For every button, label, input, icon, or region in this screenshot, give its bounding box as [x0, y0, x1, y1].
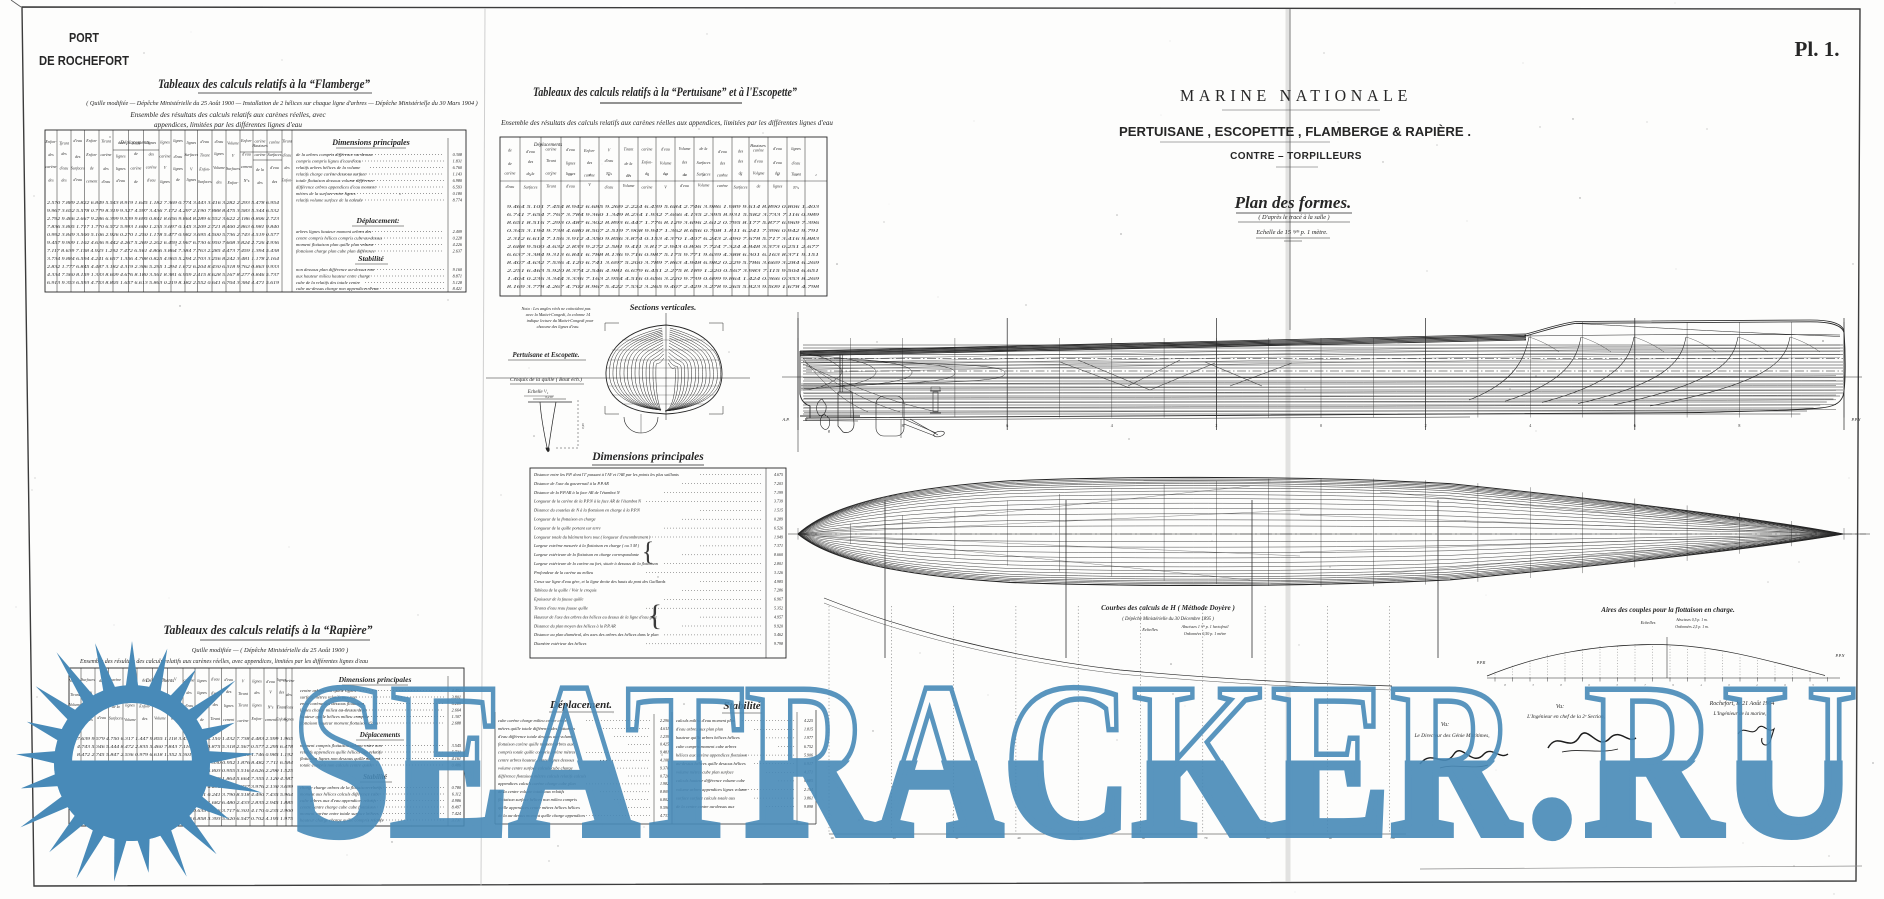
- svg-text:d'eau: d'eau: [242, 152, 251, 157]
- svg-text:3.734 9.884 6.594 4.241 6.: 3.734 9.884 6.594 4.241 6.657 1.356 4.70…: [47, 256, 280, 261]
- svg-text:3.126: 3.126: [774, 570, 783, 575]
- svg-text:6.526: 6.526: [774, 525, 783, 530]
- svg-text:2.688 9.500 4.632 2.833 9.: 2.688 9.500 4.632 2.833 9.272 2.581 9.41…: [507, 244, 820, 249]
- svg-text:0.308: 0.308: [453, 152, 463, 157]
- svg-text:d'eau: d'eau: [60, 165, 69, 170]
- svg-text:des: des: [254, 690, 260, 695]
- svg-text:Surfaces: Surfaces: [226, 166, 240, 171]
- svg-text:Echelles: Echelles: [1141, 627, 1158, 632]
- svg-text:d'eau: d'eau: [566, 147, 575, 152]
- svg-text:de: de: [200, 717, 204, 722]
- svg-text:lignes: lignes: [160, 139, 170, 144]
- svg-text:Tirant: Tirant: [546, 184, 557, 189]
- svg-text:carène: carène: [131, 166, 142, 171]
- svg-text:Longueur de la carène de la P.: Longueur de la carène de la P.P.N à la f…: [533, 499, 642, 504]
- svg-text:cube de la relatifs des totale: cube de la relatifs des totale centre: [296, 280, 360, 285]
- svg-text:7.117 8.639 7.158 4.923 1.: 7.117 8.639 7.158 4.923 1.292 7.472 6.56…: [47, 248, 280, 253]
- svg-text:{: {: [648, 599, 662, 632]
- svg-text:Distance de l'axe du gouvernai: Distance de l'axe du gouvernail à la P.P…: [533, 481, 609, 486]
- svg-text:de: de: [134, 151, 138, 156]
- svg-text:de: de: [508, 161, 512, 166]
- svg-text:1.143: 1.143: [453, 172, 462, 177]
- svg-text:lignes: lignes: [252, 703, 262, 708]
- svg-text:Aires des couples pour la flot: Aires des couples pour la flottaison en …: [1600, 606, 1735, 614]
- svg-text:carène: carène: [255, 152, 266, 157]
- svg-text:d'eau: d'eau: [661, 147, 670, 152]
- svg-text:lignes: lignes: [197, 678, 207, 683]
- svg-text:7.199: 7.199: [774, 490, 783, 495]
- svg-text:6.593: 6.593: [453, 185, 462, 190]
- svg-text:Echelle de 15 ᵐ⁄ᵐ p. 1 mètre.: Echelle de 15 ᵐ⁄ᵐ p. 1 mètre.: [1255, 229, 1328, 236]
- svg-text:g: g: [828, 428, 830, 433]
- svg-text:d'eau: d'eau: [283, 152, 292, 157]
- svg-text:de la: de la: [625, 161, 633, 166]
- svg-text:14: 14: [683, 173, 687, 177]
- svg-text:relatifs arbres hélices de la: relatifs arbres hélices de la volume: [296, 165, 360, 170]
- svg-text:1: 1: [722, 173, 724, 177]
- svg-text:3.739: 3.739: [774, 499, 783, 504]
- svg-text:aux hauteur milieu hauteur ent: aux hauteur milieu hauteur entre charge: [296, 274, 370, 279]
- svg-text:Volume: Volume: [623, 183, 635, 188]
- svg-text:8: 8: [902, 423, 904, 428]
- svg-text:de: de: [508, 148, 512, 153]
- svg-text:carène: carène: [238, 718, 249, 723]
- svg-text:Tableaux des calculs relatifs: Tableaux des calculs relatifs à la “Rapi…: [164, 622, 373, 637]
- svg-text:Déplacements: Déplacements: [533, 143, 562, 148]
- svg-text:Enfon-: Enfon-: [240, 138, 253, 143]
- svg-text:Distance de la P.P.AR à la fac: Distance de la P.P.AR à la face AR de l'…: [533, 490, 621, 495]
- svg-text:8: 8: [777, 173, 779, 177]
- svg-text:Hauteurs: Hauteurs: [749, 143, 766, 148]
- svg-text:carène: carène: [717, 183, 728, 188]
- svg-text:9.920: 9.920: [774, 623, 783, 628]
- svg-text:des: des: [528, 159, 534, 164]
- svg-text:Enfon-: Enfon-: [641, 160, 654, 165]
- svg-text:des: des: [213, 702, 219, 707]
- svg-text:Surfaces: Surfaces: [184, 152, 198, 157]
- svg-text:non dessous plan différence au: non dessous plan différence au-dessus no…: [296, 267, 375, 272]
- svg-text:2.312 6.614 7.156 3.912 4.: 2.312 6.614 7.156 3.912 4.350 9.856 3.87…: [507, 236, 820, 241]
- svg-text:Tirant: Tirant: [200, 152, 211, 157]
- svg-text:lignes: lignes: [566, 161, 576, 166]
- svg-text:lignes: lignes: [214, 151, 224, 156]
- svg-text:4.675: 4.675: [774, 472, 783, 477]
- svg-text:Volume: Volume: [698, 183, 710, 188]
- svg-text:Surfaces: Surfaces: [524, 184, 538, 189]
- svg-text:6.760: 6.760: [453, 165, 463, 170]
- svg-text:Enfon-: Enfon-: [198, 166, 211, 171]
- svg-text:d'eau: d'eau: [102, 179, 111, 184]
- svg-text:8.407 4.632 7.536 4.120 6.: 8.407 4.632 7.536 4.120 6.741 3.697 5.20…: [507, 260, 820, 265]
- svg-text:des: des: [738, 158, 744, 163]
- svg-text:8.472 2.745 5.847 2.536 0.: 8.472 2.745 5.847 2.536 0.979 6.618 1.35…: [77, 752, 294, 757]
- svg-text:d'eau: d'eau: [224, 677, 233, 682]
- svg-text:CONTRE – TORPILLEURS: CONTRE – TORPILLEURS: [1230, 151, 1362, 162]
- svg-text:5: 5: [628, 173, 630, 177]
- svg-text:Enfon-: Enfon-: [583, 148, 596, 153]
- svg-text:Dimensions principales: Dimensions principales: [331, 138, 410, 147]
- svg-text:des: des: [142, 716, 148, 721]
- svg-text:N°s: N°s: [267, 705, 274, 710]
- svg-text:Tableaux des calculs relatifs: Tableaux des calculs relatifs à la “Pert…: [533, 85, 798, 99]
- svg-text:6.980: 6.980: [453, 178, 463, 183]
- svg-text:d'eau: d'eau: [211, 677, 220, 682]
- svg-text:N°s: N°s: [243, 178, 250, 183]
- svg-text:Epaisseur de la fausse quille: Epaisseur de la fausse quille: [533, 597, 584, 602]
- svg-text:2.409: 2.409: [453, 229, 463, 234]
- svg-text:3: 3: [665, 173, 667, 177]
- svg-text:7.639 9.579 4.750 6.317 1.: 7.639 9.579 4.750 6.317 1.447 9.855 1.11…: [77, 736, 294, 741]
- svg-text:carène: carène: [269, 139, 280, 144]
- svg-text:Tirant: Tirant: [624, 146, 635, 151]
- svg-text:indique lecture du Mattei-Cong: indique lecture du Mattei-Congedi pour: [527, 318, 594, 323]
- svg-text:des: des: [257, 180, 263, 185]
- svg-text:8.774: 8.774: [453, 198, 462, 203]
- svg-text:2.637: 2.637: [453, 249, 463, 254]
- svg-text:lignes: lignes: [160, 179, 170, 184]
- svg-text:Volume: Volume: [124, 717, 136, 722]
- svg-text:d'eau: d'eau: [116, 178, 125, 183]
- svg-text:carène: carène: [753, 147, 764, 152]
- svg-text:P.P.N: P.P.N: [1851, 417, 1861, 422]
- svg-text:2.801: 2.801: [774, 561, 783, 566]
- svg-text:8.651 8.516 7.293 0.487 6.: 8.651 8.516 7.293 0.487 6.302 8.893 6.44…: [507, 220, 820, 225]
- svg-text:17: 17: [794, 173, 798, 177]
- svg-text:1.949: 1.949: [774, 534, 783, 539]
- svg-text:carène: carène: [160, 153, 171, 158]
- svg-text:4.226: 4.226: [453, 242, 463, 247]
- svg-text:9.464 5.101 7.454 8.942 6.: 9.464 5.101 7.454 8.942 6.685 9.269 2.22…: [507, 204, 820, 209]
- svg-text:Abscisses 1 ᵖ/ᵐ p. 1 hectofe: Abscisses 1 ᵖ/ᵐ p. 1 hectofeuil: [1180, 624, 1229, 629]
- svg-text:lignes: lignes: [773, 184, 783, 189]
- svg-text:de: de: [90, 166, 94, 171]
- svg-text:7.203: 7.203: [774, 481, 783, 486]
- svg-text:Enfon-: Enfon-: [251, 716, 264, 721]
- svg-text:compris compris lignes d'eau d: compris compris lignes d'eau d'eau: [296, 159, 362, 164]
- svg-text:d'eau: d'eau: [526, 149, 535, 154]
- svg-text:R: R: [804, 417, 808, 422]
- svg-text:Hauteur de l'axe des arbres de: Hauteur de l'axe des arbres des hélices …: [533, 614, 657, 619]
- svg-text:Surfaces: Surfaces: [734, 185, 748, 190]
- svg-text:( D'après le tracé à la salle: ( D'après le tracé à la salle ): [1258, 214, 1329, 221]
- svg-text:4.985: 4.985: [774, 579, 783, 584]
- svg-text:4: 4: [647, 173, 649, 177]
- svg-text:Distance du coutelas de N à la: Distance du coutelas de N à la flottaiso…: [533, 508, 641, 513]
- svg-text:1: 1: [815, 173, 817, 177]
- svg-text:Ensemble des résultats des cal: Ensemble des résultats des calculs relat…: [129, 111, 326, 119]
- svg-text:carène: carène: [46, 164, 57, 169]
- svg-text:Enfon-: Enfon-: [85, 138, 98, 143]
- svg-text:Distance du plan moyen des hél: Distance du plan moyen des hélices à la …: [533, 623, 616, 628]
- svg-text:des: des: [272, 179, 278, 184]
- svg-text:Enfon-: Enfon-: [85, 152, 98, 157]
- svg-text:lignes: lignes: [116, 153, 126, 158]
- svg-text:des: des: [226, 689, 232, 694]
- svg-text:Tirant: Tirant: [101, 138, 112, 143]
- svg-text:Tirant: Tirant: [238, 691, 249, 696]
- svg-text:d'eau: d'eau: [773, 146, 782, 151]
- svg-text:de: de: [176, 177, 180, 182]
- svg-text:d'eau: d'eau: [97, 715, 106, 720]
- svg-text:PERTUISANE , ESCOPETTE , FLAMB: PERTUISANE , ESCOPETTE , FLAMBERGE & RAP…: [1119, 124, 1471, 139]
- svg-text:Longueur totale du bâtiment ho: Longueur totale du bâtiment hors tout ( …: [533, 534, 651, 539]
- svg-text:cement: cement: [223, 717, 235, 722]
- svg-text:8.169 3.778 4.267 4.702 8.: 8.169 3.778 4.267 4.702 8.967 5.422 7.53…: [507, 284, 820, 289]
- svg-text:4: 4: [1529, 423, 1531, 428]
- svg-text:des: des: [186, 690, 192, 695]
- svg-text:relatifs charge carène dessous: relatifs charge carène dessous surface: [296, 172, 366, 177]
- svg-text:d'eau: d'eau: [605, 185, 614, 190]
- svg-text:d'eau: d'eau: [200, 139, 209, 144]
- svg-text:d'eau: d'eau: [266, 679, 275, 684]
- svg-text:Longueur de la flottaison en c: Longueur de la flottaison en charge: [533, 517, 596, 522]
- svg-text:0.180: 0.180: [453, 191, 463, 196]
- svg-text:6.637 3.384 9.313 6.841 6.: 6.637 3.384 9.313 6.841 6.788 8.136 9.71…: [507, 252, 819, 257]
- svg-text:8: 8: [1738, 423, 1740, 428]
- svg-text:Stabilité: Stabilité: [358, 254, 384, 263]
- svg-text:5.128: 5.128: [453, 280, 463, 285]
- svg-text:9.967 3.652 5.578 0.779 8.: 9.967 3.652 5.578 0.779 8.319 9.327 4.59…: [47, 208, 280, 213]
- svg-text:d'eau: d'eau: [754, 158, 763, 163]
- svg-text:relatifs volume surface de la: relatifs volume surface de la calculs: [296, 198, 363, 203]
- svg-text:des: des: [279, 690, 285, 695]
- svg-text:de la: de la: [700, 146, 708, 151]
- svg-text:5.352: 5.352: [774, 606, 783, 611]
- svg-text:Courbes des calculs de H ( Mé: Courbes des calculs de H ( Méthode Doyèr…: [1101, 604, 1235, 612]
- svg-text:Surfaces: Surfaces: [81, 677, 95, 682]
- svg-text:Tirant: Tirant: [210, 716, 221, 721]
- svg-text:Plan des formes.: Plan des formes.: [1234, 193, 1352, 212]
- svg-text:Ensemble des résultats des cal: Ensemble des résultats des calculs relat…: [500, 119, 833, 127]
- svg-text:9.160: 9.160: [453, 267, 463, 272]
- svg-text:2.792 9.466 2.667 9.286 6.: 2.792 9.466 2.667 9.286 6.399 9.539 9.69…: [47, 216, 280, 221]
- svg-text:Pl. 1.: Pl. 1.: [1795, 37, 1840, 61]
- svg-text:Distance entre les P.P. dont l: Distance entre les P.P. dont l'I' passan…: [533, 472, 679, 477]
- svg-text:appendices, limitées par les d: appendices, limitées par les différentes…: [154, 121, 302, 129]
- svg-text:de: de: [757, 184, 761, 189]
- svg-text:4.334 7.560 8.159 1.333 8.: 4.334 7.560 8.159 1.333 8.609 4.676 8.18…: [47, 272, 280, 277]
- svg-text:Croquis de la quille ( Bout éc: Croquis de la quille ( Bout éch.): [510, 376, 582, 383]
- svg-text:6.967: 6.967: [774, 597, 784, 602]
- svg-text:Volume: Volume: [227, 141, 239, 146]
- svg-text:7.836 3.805 1.717 1.770 6.: 7.836 3.805 1.717 1.770 6.572 5.993 1.60…: [47, 224, 280, 229]
- svg-text:Largeur extérieure de la flott: Largeur extérieure de la flottaison en c…: [533, 552, 639, 557]
- svg-text:de la arbres compris différenc: de la arbres compris différence au-dessu…: [296, 152, 373, 157]
- svg-text:Tirants d'eau reau fausse qui: Tirants d'eau reau fausse quille: [534, 606, 588, 611]
- svg-text:Tirant: Tirant: [546, 158, 557, 163]
- svg-text:8: 8: [589, 173, 591, 177]
- svg-text:d'eau: d'eau: [718, 149, 727, 154]
- svg-text:carène: carène: [642, 185, 653, 190]
- svg-text:des: des: [682, 159, 688, 164]
- svg-text:lignes: lignes: [186, 177, 196, 182]
- svg-text:d'eau: d'eau: [680, 183, 689, 188]
- svg-text:7.371: 7.371: [774, 543, 783, 548]
- svg-text:des: des: [61, 151, 67, 156]
- svg-text:cement: cement: [241, 164, 253, 169]
- svg-text:d'eau: d'eau: [605, 158, 614, 163]
- svg-text:{: {: [642, 537, 654, 566]
- svg-text:d'eau: d'eau: [147, 177, 156, 182]
- svg-text:0.345 3.194 9.738 4.680 8.: 0.345 3.194 9.738 4.680 8.507 2.519 7.90…: [507, 228, 819, 233]
- svg-text:de: de: [134, 179, 138, 184]
- svg-text:lignes: lignes: [186, 140, 196, 145]
- svg-text:d'eau: d'eau: [73, 177, 82, 182]
- svg-text:carène: carène: [101, 152, 112, 157]
- svg-text:0: 0: [1320, 423, 1322, 428]
- svg-text:DE ROCHEFORT: DE ROCHEFORT: [39, 53, 129, 68]
- svg-text:différence arbres appendices d: différence arbres appendices d'eau momen…: [296, 185, 376, 190]
- svg-text:Volume: Volume: [660, 161, 672, 166]
- svg-text:carène: carène: [505, 171, 516, 176]
- svg-text:Volume: Volume: [213, 165, 225, 170]
- svg-text:3: 3: [740, 173, 742, 177]
- svg-text:0.289: 0.289: [774, 517, 783, 522]
- svg-text:Tableaux des calculs relatifs: Tableaux des calculs relatifs à la “Flam…: [158, 76, 370, 91]
- svg-text:PORT: PORT: [69, 30, 99, 45]
- svg-text:lignes: lignes: [252, 678, 262, 683]
- svg-text:Enfon-: Enfon-: [281, 177, 294, 182]
- svg-text:Sections verticales.: Sections verticales.: [630, 302, 697, 312]
- svg-text:Tirant: Tirant: [238, 703, 249, 708]
- svg-text:des: des: [75, 154, 81, 159]
- svg-text:2.832 1.777 6.845 4.487 3.: 2.832 1.777 6.845 4.487 3.182 4.319 2.30…: [47, 264, 280, 269]
- svg-text:cube au-dessus charge non appe: cube au-dessus charge non appendices d'e…: [296, 286, 379, 291]
- svg-text:2.570 7.889 2.822 6.849 5.: 2.570 7.889 2.822 6.849 5.543 8.919 1.64…: [47, 200, 280, 205]
- svg-text:N°s: N°s: [792, 185, 799, 190]
- svg-text:9: 9: [570, 173, 572, 177]
- svg-text:lignes: lignes: [173, 138, 183, 143]
- svg-text:des: des: [103, 166, 109, 171]
- svg-text:d'eau: d'eau: [566, 184, 575, 189]
- svg-text:Surfaces: Surfaces: [71, 166, 85, 171]
- svg-text:Nota : Les angles réels ne coï: Nota : Les angles réels ne coïncident pa…: [521, 306, 591, 311]
- svg-text:Enfon-: Enfon-: [45, 139, 58, 144]
- svg-text:Tableau de la quille / Voir le: Tableau de la quille / Voir le croquis: [534, 588, 597, 593]
- svg-text:d'eau: d'eau: [215, 139, 224, 144]
- svg-text:Surfaces: Surfaces: [268, 152, 282, 157]
- svg-text:des: des: [216, 180, 222, 185]
- svg-text:lignes: lignes: [116, 166, 126, 171]
- svg-text:9.457 9.909 1.102 4.636 9.: 9.457 9.909 1.102 4.636 9.442 4.267 5.26…: [47, 240, 280, 245]
- svg-text:6.913 9.353 6.593 4.753 8.: 6.913 9.353 6.593 4.753 8.805 1.657 6.61…: [47, 280, 280, 285]
- svg-text:mètres de la surface entre lig: mètres de la surface entre lignes: [296, 191, 356, 196]
- svg-text:des: des: [48, 177, 54, 182]
- svg-text:Dimensions principales: Dimensions principales: [591, 451, 704, 463]
- svg-text:Surfaces: Surfaces: [198, 179, 212, 184]
- svg-text:chacune des lignes d'eau.: chacune des lignes d'eau.: [537, 324, 580, 329]
- svg-text:4: 4: [1111, 423, 1113, 428]
- svg-text:des: des: [738, 148, 744, 153]
- svg-text:de la: de la: [256, 167, 264, 172]
- svg-text:Pertuisane et Escopette.: Pertuisane et Escopette.: [512, 352, 579, 359]
- svg-text:8: 8: [608, 173, 610, 177]
- svg-text:des: des: [284, 165, 290, 170]
- svg-text:d'eau: d'eau: [792, 160, 801, 165]
- svg-text:1: 1: [550, 173, 552, 177]
- svg-text:1.404 0.236 3.344 3.336 7.: 1.404 0.236 3.344 3.336 7.163 2.954 4.51…: [507, 276, 820, 281]
- svg-text:Surfaces: Surfaces: [697, 160, 711, 165]
- svg-text:Profondeur de la carène au mil: Profondeur de la carène au milieu: [533, 570, 593, 575]
- svg-text:lignes: lignes: [791, 146, 801, 151]
- svg-text:Déplacement:: Déplacement:: [356, 216, 400, 225]
- svg-text:cement: cement: [86, 179, 98, 184]
- svg-text:6.741 7.654 7.767 3.784 9.: 6.741 7.654 7.767 3.784 9.360 1.349 8.23…: [507, 212, 820, 217]
- svg-text:Longueur de la quille portant: Longueur de la quille portant sur terre: [533, 525, 601, 530]
- svg-text:0.228: 0.228: [453, 236, 463, 241]
- svg-text:lignes: lignes: [224, 703, 234, 708]
- svg-text:des: des: [587, 160, 593, 165]
- svg-text:d'eau: d'eau: [73, 138, 82, 143]
- svg-text:carène: carène: [642, 147, 653, 152]
- svg-text:2.251 6.463 5.920 8.374 2.: 2.251 6.463 5.920 8.374 2.546 4.981 6.67…: [507, 268, 819, 273]
- svg-text:7.286: 7.286: [774, 588, 783, 593]
- svg-text:Echelles: Echelles: [1640, 620, 1656, 625]
- svg-text:Largeur extrême mesurée à la f: Largeur extrême mesurée à la flottaison …: [533, 543, 640, 548]
- svg-text:d'eau: d'eau: [506, 184, 515, 189]
- svg-text:4: 4: [529, 173, 531, 177]
- svg-text:A.P.: A.P.: [781, 417, 789, 422]
- svg-text:d'eau: d'eau: [773, 160, 782, 165]
- svg-text:des: des: [61, 177, 67, 182]
- svg-text:Hauteurs: Hauteurs: [251, 143, 268, 148]
- svg-text:des: des: [149, 151, 155, 156]
- svg-text:d'eau: d'eau: [174, 154, 183, 159]
- svg-text:moment flottaison plan quille: moment flottaison plan quille plan volum…: [296, 242, 374, 247]
- svg-text:0.992 3.849 3.500 5.106 2.: 0.992 3.849 3.500 5.106 2.926 0.270 1.25…: [47, 232, 280, 237]
- svg-text:Volume: Volume: [154, 715, 166, 720]
- svg-text:2: 2: [703, 173, 705, 177]
- svg-text:des: des: [48, 152, 54, 157]
- svg-text:7: 7: [758, 173, 760, 177]
- svg-text:1.515: 1.515: [774, 508, 783, 513]
- svg-text:Tirant: Tirant: [282, 139, 293, 144]
- svg-text:lignes: lignes: [197, 690, 207, 695]
- svg-text:Surfaces: Surfaces: [109, 715, 123, 720]
- svg-text:des: des: [720, 161, 726, 166]
- svg-text:8.660: 8.660: [774, 552, 783, 557]
- svg-text:1.831: 1.831: [453, 159, 462, 164]
- svg-text:Enfon-: Enfon-: [227, 180, 240, 185]
- svg-text:( Dépêche Ministérielle du 30: ( Dépêche Ministérielle du 30 Décembre 1…: [1122, 617, 1214, 622]
- svg-text:8.871: 8.871: [453, 274, 462, 279]
- svg-text:8.421: 8.421: [453, 286, 462, 291]
- svg-text:4.743 5.346 5.444 8.472 2.: 4.743 5.346 5.444 8.472 2.835 5.460 7.84…: [77, 744, 294, 749]
- svg-text:lignes: lignes: [173, 166, 183, 171]
- svg-text:MARINE NATIONALE: MARINE NATIONALE: [1180, 86, 1412, 105]
- svg-text:Volume: Volume: [679, 146, 691, 151]
- svg-text:carène: carène: [146, 164, 157, 169]
- svg-text:d'eau: d'eau: [270, 165, 279, 170]
- svg-text:Déplacements: Déplacements: [119, 140, 149, 146]
- svg-text:4.957: 4.957: [774, 614, 784, 619]
- svg-text:( Quille modifiée — Dépêche Mi: ( Quille modifiée — Dépêche Ministériell…: [86, 100, 477, 107]
